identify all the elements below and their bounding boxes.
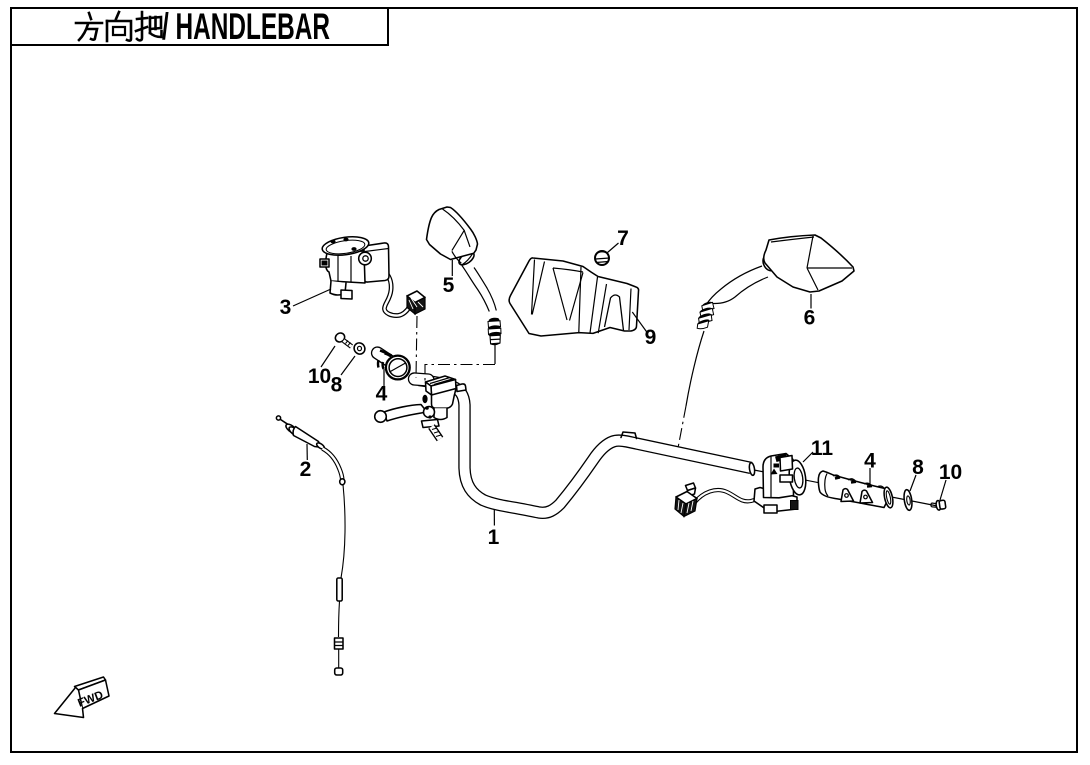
svg-text:3: 3 (280, 296, 292, 319)
svg-text:11: 11 (811, 437, 834, 460)
svg-text:/ HANDLEBAR: / HANDLEBAR (162, 6, 330, 47)
svg-text:10: 10 (939, 461, 962, 484)
svg-text:10: 10 (308, 365, 331, 388)
svg-text:7: 7 (617, 227, 629, 250)
svg-text:1: 1 (488, 526, 500, 549)
svg-text:8: 8 (912, 456, 924, 479)
svg-text:2: 2 (300, 458, 312, 481)
svg-text:9: 9 (645, 326, 657, 349)
svg-text:4: 4 (864, 450, 876, 473)
svg-text:5: 5 (443, 274, 455, 297)
svg-text:6: 6 (804, 307, 816, 330)
svg-text:8: 8 (331, 374, 343, 397)
svg-text:4: 4 (376, 383, 388, 406)
